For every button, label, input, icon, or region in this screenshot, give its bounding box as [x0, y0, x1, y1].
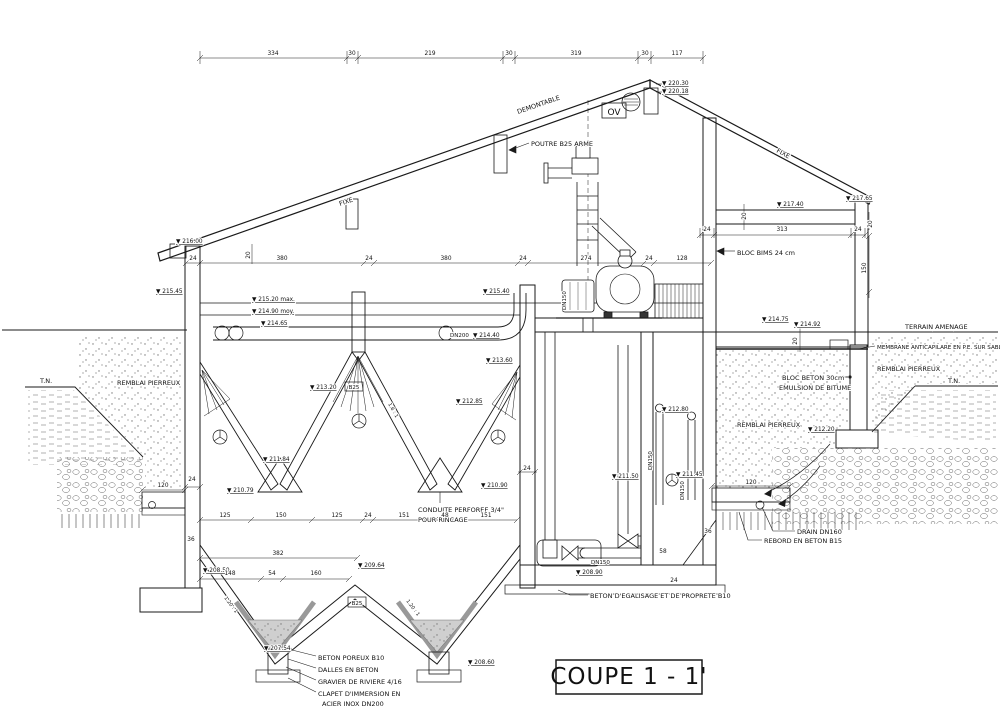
pipe-section-symbols: [213, 414, 505, 444]
lamella-wall-right: [448, 365, 520, 490]
elev-210-90: ▼ 210.90: [481, 483, 508, 489]
footing-left: [140, 588, 202, 612]
dim-top-30a: 30: [348, 51, 356, 57]
dim-wall-24: 24: [523, 466, 531, 472]
dim-floor-125b: 125: [331, 513, 342, 519]
elev-213-20: ▼ 213.20: [310, 385, 337, 391]
elev-211-84: ▼ 211.84: [263, 457, 290, 463]
machine-foot-2: [640, 312, 648, 318]
dim-low-148: 148: [224, 571, 235, 577]
drain-pipe-left: [149, 502, 156, 509]
label-terrain-amenage: TERRAIN AMENAGE: [904, 323, 968, 331]
dim-int-24c: 24: [519, 256, 527, 262]
footing-right: [836, 430, 878, 448]
leader-rebord: [739, 512, 762, 540]
elev-208-90: ▼ 208.90: [576, 570, 603, 576]
elev-214-90-moy: ▼ 214.90 moy.: [252, 309, 294, 315]
label-demontable: DEMONTABLE: [516, 94, 561, 116]
elev-209-64: ▼ 209.64: [358, 563, 385, 569]
elev-214-40: ▼ 214.40: [473, 333, 500, 339]
label-clapet-line2: ACIER INOX DN200: [322, 700, 384, 708]
dim-int-380a: 380: [276, 256, 287, 262]
riser-branch-pipe: [548, 168, 572, 178]
stone-fill-left: [57, 457, 143, 512]
label-bloc-bims: BLOC BIMS 24 cm: [737, 249, 795, 257]
label-dn150-pipe2: DN150: [680, 481, 686, 500]
pipe4-cap: [688, 412, 696, 420]
label-dalles-beton: DALLES EN BETON: [318, 666, 379, 674]
label-poutre-b25-arme: POUTRE B25 ARME: [531, 140, 593, 148]
leader-bims-arrow: [717, 248, 724, 255]
pipe-horizontal-dn150: [578, 548, 641, 558]
valve1-left: [562, 546, 570, 560]
ridge-chimney: [644, 88, 658, 114]
dim-total-382: 382: [272, 551, 283, 557]
dim-top-30c: 30: [641, 51, 649, 57]
leader-dalles: [288, 659, 316, 668]
flange-coupling: [580, 548, 585, 558]
dim-top-117: 117: [671, 51, 682, 57]
title-block: COUPE 1 - 1': [550, 660, 707, 694]
label-rebord-beton: REBORD EN BETON B15: [764, 537, 842, 545]
elev-217-65: ▼ 217.65: [846, 196, 873, 202]
dim-wall-20b: 20: [868, 220, 874, 228]
dim-int-24b: 24: [365, 256, 373, 262]
elev-211-50: ▼ 211.50: [612, 474, 639, 480]
riser-flange: [544, 163, 548, 183]
pipe-roller-1: [215, 326, 229, 340]
elev-212-85: ▼ 212.85: [456, 399, 483, 405]
label-clapet-line1: CLAPET D'IMMERSION EN: [318, 690, 401, 698]
dim-floor-151a: 151: [398, 513, 409, 519]
label-remblai-right-inner: REMBLAI PIERREUX: [737, 421, 801, 429]
elev-214-92: ▼ 214.92: [794, 322, 821, 328]
elev-207-54: ▼ 207.54: [264, 646, 291, 652]
dim-slab-20c: 20: [793, 337, 799, 345]
label-tn-right: T.N.: [947, 377, 960, 385]
riser-head: [572, 158, 598, 174]
right-ground: [712, 334, 998, 530]
pump-chamber: [537, 318, 696, 566]
pump-room-floor-slab: [535, 318, 703, 332]
elev-220-30: ▼ 220.30: [662, 81, 689, 87]
wall-bims-left: [703, 118, 716, 332]
hopper-footing-2: [417, 670, 461, 682]
elev-215-40: ▼ 215.40: [483, 289, 510, 295]
pipe-roller-2: [229, 326, 243, 340]
dim-floor-48: 48: [441, 513, 449, 519]
dim-low-160: 160: [310, 571, 321, 577]
dim-wall-150: 150: [862, 262, 868, 273]
membrane-detail: [830, 340, 848, 349]
label-remblai-right-outer: REMBLAI PIERREUX: [877, 365, 941, 373]
dim-low-54: 54: [268, 571, 276, 577]
elev-215-20-max: ▼ 215.20 max.: [252, 297, 295, 303]
label-membrane: MEMBRANE ANTICAPILARE EN P.E. SUR SABLE: [877, 345, 1000, 351]
pipe4-vertical: [688, 420, 695, 500]
label-emulsion-bitume: EMULSION DE BITUME: [779, 384, 851, 392]
elev-214-65: ▼ 214.65: [261, 321, 288, 327]
dim-top-319: 319: [570, 51, 581, 57]
dim-floor-125a: 125: [219, 513, 230, 519]
fan-grating-right: [492, 372, 517, 420]
roof: [158, 80, 872, 261]
label-b25-column: B25: [349, 385, 360, 391]
splitter-column: [352, 292, 365, 352]
elev-215-45: ▼ 215.45: [156, 289, 183, 295]
dim-right-120: 120: [745, 480, 756, 486]
chamber-wall-mid: [641, 332, 653, 565]
valve2-left: [618, 534, 628, 548]
label-bloc-beton: BLOC BETON 30cm: [782, 374, 844, 382]
hopper-footing-1: [256, 670, 300, 682]
ledge-left-pad: [142, 508, 185, 515]
label-beton-egalisage: BETON D'EGALISAGE ET DE PROPRETE B10: [590, 592, 731, 600]
dim-floor-150: 150: [275, 513, 286, 519]
roof-vent-louvers: [623, 99, 639, 105]
pipe1-vertical: [545, 332, 555, 548]
dim-int-24a: 24: [189, 256, 197, 262]
dim-top-30b: 30: [505, 51, 513, 57]
chamber-slope: [683, 520, 716, 565]
dim-room-24a: 24: [703, 227, 711, 233]
dim-top-219: 219: [424, 51, 435, 57]
riser-pipe-stack: [577, 182, 598, 266]
label-b25-ridge: B25: [352, 601, 363, 607]
natural-ground-right: [874, 390, 996, 442]
gravel-dots-2: [410, 620, 464, 652]
elev-216-00: ▼ 216.00: [176, 239, 203, 245]
stone-fill-right: [772, 448, 998, 524]
dim-right-58: 58: [659, 549, 667, 555]
dim-left-24: 24: [188, 477, 196, 483]
label-dn150-horizontal: DN150: [591, 560, 610, 566]
left-ground: [25, 334, 202, 612]
dim-slab-20a: 20: [742, 212, 748, 220]
label-beton-poreux: BETON POREUX B10: [318, 654, 384, 662]
dim-int-24d: 24: [645, 256, 653, 262]
label-dn150-pipe1: DN150: [648, 451, 654, 470]
dim-right-36: 36: [704, 529, 712, 535]
elev-211-45: ▼ 211.45: [676, 472, 703, 478]
leader-poutre-arrow: [509, 146, 516, 153]
valve2-right: [628, 534, 638, 548]
elev-213-60: ▼ 213.60: [486, 358, 513, 364]
leader-clapet: [288, 678, 316, 692]
elev-220-18: ▼ 220.18: [662, 89, 689, 95]
ceiling-slab-right-room: [716, 210, 855, 224]
splitter-leg-right: [359, 352, 437, 490]
dim-room-24b: 24: [854, 227, 862, 233]
pipe2-vertical: [618, 345, 628, 534]
pipe1-elbow: [543, 540, 557, 558]
drain-ticks-left: [62, 514, 139, 528]
dim-int-274: 274: [580, 256, 591, 262]
valve1-right: [570, 546, 578, 560]
flow-arrow-1-head: [764, 489, 772, 497]
dim-int-380b: 380: [440, 256, 451, 262]
dividing-wall: [520, 285, 535, 588]
elev-212-20: ▼ 212.20: [808, 427, 835, 433]
leader-poreux: [292, 650, 316, 656]
dim-eave-20: 20: [246, 251, 252, 259]
elev-214-75: ▼ 214.75: [762, 317, 789, 323]
dim-room-313: 313: [776, 227, 787, 233]
label-drain-dn160: DRAIN DN160: [797, 528, 842, 536]
label-slope-lamella: 1.6 : 1: [386, 402, 399, 419]
blower-dome-cap: [620, 250, 630, 256]
flow-triangle-2: [418, 458, 462, 492]
floor-slab-right-room: [716, 332, 868, 347]
elev-210-79: ▼ 210.79: [227, 488, 254, 494]
fan-grating-left: [202, 370, 230, 416]
dim-right-24: 24: [670, 578, 678, 584]
splitter-leg-left: [280, 352, 358, 490]
lamella-wall-left: [200, 362, 278, 490]
grate-bars: [659, 284, 699, 318]
dim-int-128: 128: [676, 256, 687, 262]
dim-floor-151b: 151: [480, 513, 491, 519]
coupe-1-1-section-drawing: COUPE 1 - 1' POUTRE B25 ARMEDEMONTABLEFI…: [0, 0, 1000, 727]
elev-217-40: ▼ 217.40: [777, 202, 804, 208]
label-dn150-discharge: DN150: [562, 291, 568, 310]
roof-beam-right: [650, 80, 872, 204]
bottom-slab: [520, 565, 716, 585]
blower-body: [596, 266, 654, 312]
label-ov: OV: [607, 108, 621, 118]
leader-gravier: [286, 667, 316, 680]
machine-foot-1: [604, 312, 612, 318]
label-tn-left: T.N.: [39, 377, 52, 385]
elev-208-60: ▼ 208.60: [468, 660, 495, 666]
pipe-dn200-elbow: [498, 293, 526, 340]
technical-drawing-page: COUPE 1 - 1' POUTRE B25 ARMEDEMONTABLEFI…: [0, 0, 1000, 727]
discharge-through-slab: [583, 318, 593, 332]
label-gravier-riviere: GRAVIER DE RIVIERE 4/16: [318, 678, 402, 686]
drawing-title: COUPE 1 - 1': [550, 664, 707, 690]
dim-floor-24: 24: [364, 513, 372, 519]
dim-left-120: 120: [157, 483, 168, 489]
foundation-wall-right: [850, 345, 867, 430]
pump-machine: [544, 100, 703, 318]
label-remblai-left: REMBLAI PIERREUX: [117, 379, 181, 387]
pipe3-vertical: [656, 412, 663, 505]
elev-212-80: ▼ 212.80: [662, 407, 689, 413]
dim-top-334: 334: [267, 51, 278, 57]
dim-left-36: 36: [187, 537, 195, 543]
leader-bloc-beton-dot: [849, 376, 852, 379]
label-dn200: DN200: [450, 333, 469, 339]
